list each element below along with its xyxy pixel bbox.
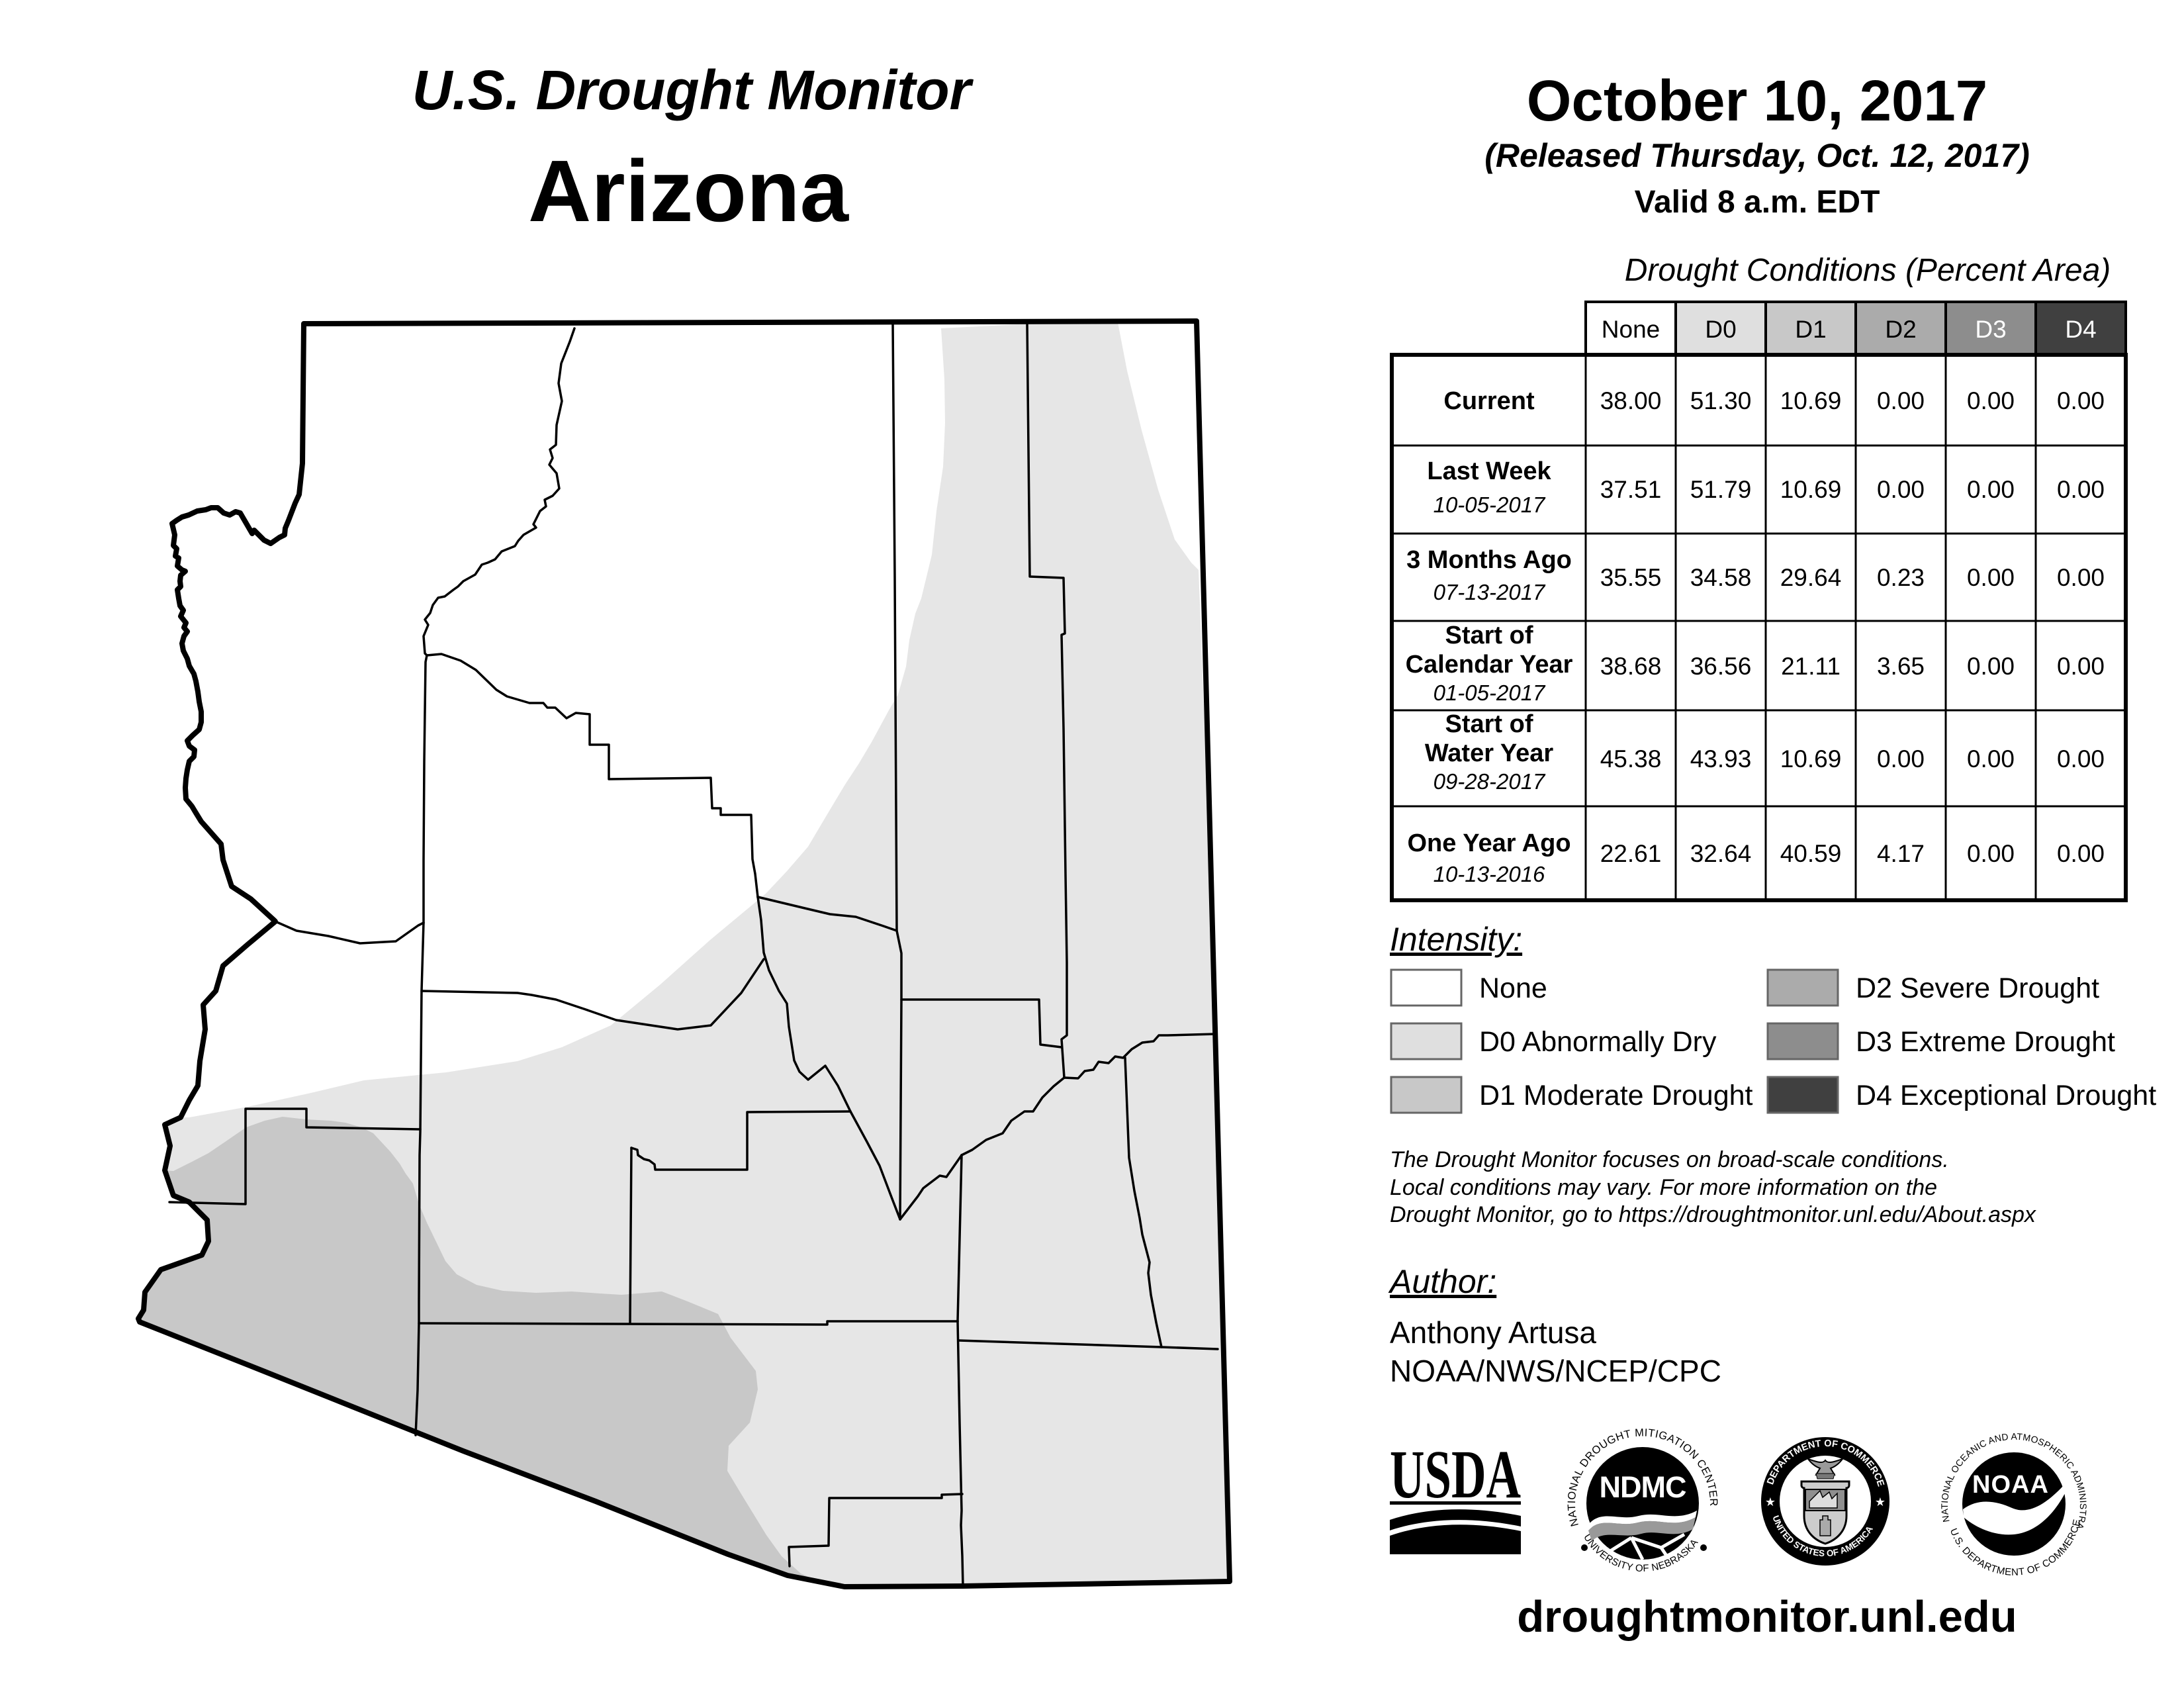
svg-text:51.30: 51.30	[1690, 387, 1752, 414]
svg-text:0.00: 0.00	[2057, 653, 2105, 680]
svg-text:D2: D2	[1885, 316, 1916, 343]
svg-text:09-28-2017: 09-28-2017	[1433, 769, 1546, 794]
svg-text:NDMC: NDMC	[1600, 1470, 1686, 1504]
svg-text:21.11: 21.11	[1781, 653, 1841, 680]
svg-text:0.00: 0.00	[2057, 476, 2105, 503]
svg-text:01-05-2017: 01-05-2017	[1433, 680, 1546, 705]
svg-text:36.56: 36.56	[1690, 653, 1752, 680]
svg-text:10-05-2017: 10-05-2017	[1433, 492, 1546, 517]
svg-text:0.00: 0.00	[2057, 387, 2105, 414]
svg-text:40.59: 40.59	[1780, 840, 1842, 867]
svg-text:3 Months Ago: 3 Months Ago	[1406, 546, 1572, 574]
svg-text:0.00: 0.00	[1877, 745, 1925, 773]
svg-text:32.64: 32.64	[1690, 840, 1752, 867]
svg-text:35.55: 35.55	[1600, 564, 1662, 591]
svg-text:Current: Current	[1443, 387, 1535, 415]
svg-text:★: ★	[1875, 1495, 1886, 1509]
svg-text:0.00: 0.00	[1967, 653, 2015, 680]
svg-text:D1 Moderate Drought: D1 Moderate Drought	[1479, 1080, 1753, 1111]
svg-text:34.58: 34.58	[1690, 564, 1752, 591]
svg-text:10-13-2016: 10-13-2016	[1433, 862, 1545, 886]
svg-text:Calendar Year: Calendar Year	[1406, 651, 1573, 679]
svg-text:10.69: 10.69	[1780, 387, 1842, 414]
svg-text:★: ★	[1765, 1495, 1776, 1509]
svg-text:D0 Abnormally Dry: D0 Abnormally Dry	[1479, 1026, 1717, 1058]
svg-text:0.00: 0.00	[2057, 840, 2105, 867]
svg-text:Last Week: Last Week	[1427, 457, 1551, 485]
svg-text:38.68: 38.68	[1600, 653, 1662, 680]
svg-text:3.65: 3.65	[1877, 653, 1925, 680]
svg-text:0.00: 0.00	[1967, 564, 2015, 591]
svg-text:NOAA: NOAA	[1972, 1471, 2049, 1499]
svg-text:37.51: 37.51	[1600, 476, 1662, 503]
svg-text:D2 Severe Drought: D2 Severe Drought	[1856, 972, 2099, 1004]
svg-text:D4: D4	[2065, 316, 2096, 343]
svg-text:D3: D3	[1975, 316, 2006, 343]
svg-text:None: None	[1602, 316, 1660, 343]
svg-text:Water Year: Water Year	[1425, 739, 1554, 767]
svg-text:22.61: 22.61	[1600, 840, 1662, 867]
svg-text:0.00: 0.00	[1877, 387, 1925, 414]
svg-text:D1: D1	[1795, 316, 1826, 343]
svg-text:29.64: 29.64	[1780, 564, 1842, 591]
svg-text:Start of: Start of	[1445, 710, 1533, 738]
svg-text:D3 Extreme Drought: D3 Extreme Drought	[1856, 1026, 2115, 1058]
svg-text:0.00: 0.00	[1967, 840, 2015, 867]
svg-text:07-13-2017: 07-13-2017	[1433, 580, 1546, 604]
svg-text:38.00: 38.00	[1600, 387, 1662, 414]
svg-text:0.00: 0.00	[1967, 387, 2015, 414]
svg-text:43.93: 43.93	[1690, 745, 1752, 773]
svg-text:D0: D0	[1705, 316, 1736, 343]
svg-text:0.00: 0.00	[2057, 745, 2105, 773]
svg-text:One Year Ago: One Year Ago	[1407, 829, 1570, 857]
svg-text:45.38: 45.38	[1600, 745, 1662, 773]
svg-text:0.00: 0.00	[1967, 745, 2015, 773]
svg-text:10.69: 10.69	[1780, 476, 1842, 503]
svg-text:4.17: 4.17	[1877, 840, 1925, 867]
svg-text:D4 Exceptional Drought: D4 Exceptional Drought	[1856, 1080, 2156, 1111]
svg-text:0.00: 0.00	[1967, 476, 2015, 503]
svg-text:None: None	[1479, 972, 1547, 1004]
svg-text:0.00: 0.00	[2057, 564, 2105, 591]
svg-text:Start of: Start of	[1445, 622, 1533, 649]
svg-text:0.23: 0.23	[1877, 564, 1925, 591]
svg-text:51.79: 51.79	[1690, 476, 1752, 503]
svg-text:0.00: 0.00	[1877, 476, 1925, 503]
svg-text:10.69: 10.69	[1780, 745, 1842, 773]
svg-text:USDA: USDA	[1390, 1436, 1521, 1513]
